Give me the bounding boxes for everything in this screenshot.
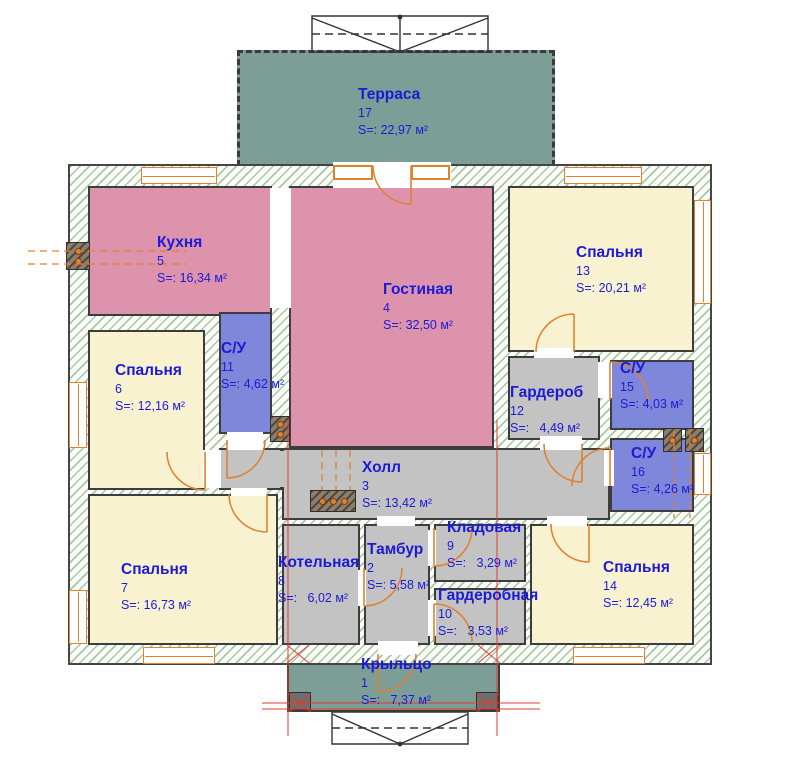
room-name: Крыльцо [361,655,432,675]
door-opening [428,600,436,636]
room-dressing10-label: Гардеробная 10 S=: 3,53 м² [438,586,538,639]
window [573,647,645,664]
room-number: 1 [361,675,432,692]
room-hall-corridor-area [219,448,282,490]
room-name: Холл [362,458,432,478]
door-opening [227,432,263,450]
room-su15-label: С/У 15 S=: 4,03 м² [620,359,683,412]
room-number: 5 [157,253,227,270]
porch-post [476,692,498,710]
vent-shaft [270,416,290,442]
room-name: Кухня [157,233,227,253]
window [69,590,87,644]
room-area: S=: 13,42 м² [362,495,432,512]
room-number: 10 [438,606,538,623]
room-area: S=: 16,73 м² [121,597,191,614]
door-opening [231,488,267,496]
passage-opening [270,188,291,308]
room-living-label: Гостиная 4 S=: 32,50 м² [383,280,453,333]
room-number: 2 [367,560,430,577]
room-wardrobe12-label: Гардероб 12 S=: 4,49 м² [510,383,583,436]
room-name: Гардероб [510,383,583,403]
door-opening [358,570,366,606]
room-porch-label: Крыльцо 1 S=: 7,37 м² [361,655,432,708]
room-name: Кладовая [447,518,521,538]
room-su16-label: С/У 16 S=: 4,26 м² [631,444,694,497]
room-bedroom7-label: Спальня 7 S=: 16,73 м² [121,560,191,613]
door-opening [604,450,614,486]
window [141,167,217,184]
room-number: 7 [121,580,191,597]
room-number: 16 [631,464,694,481]
room-number: 12 [510,403,583,420]
room-terrace-label: Терраса 17 S=: 22,97 м² [358,85,428,138]
window [143,647,215,664]
stairs-bottom [332,712,468,746]
room-kitchen-label: Кухня 5 S=: 16,34 м² [157,233,227,286]
room-hall-label: Холл 3 S=: 13,42 м² [362,458,432,511]
room-name: С/У [221,339,284,359]
room-area: S=: 32,50 м² [383,317,453,334]
room-area: S=: 16,34 м² [157,270,227,287]
room-number: 17 [358,105,428,122]
room-area: S=: 3,29 м² [447,555,521,572]
room-area: S=: 6,02 м² [278,590,359,607]
room-number: 9 [447,538,521,555]
window [564,167,642,184]
room-bedroom14-label: Спальня 14 S=: 12,45 м² [603,558,673,611]
terrace-door-frame [411,165,450,180]
room-name: Спальня [121,560,191,580]
porch-post [289,692,311,710]
room-name: С/У [631,444,694,464]
room-area: S=: 4,49 м² [510,420,583,437]
room-number: 11 [221,359,284,376]
room-number: 15 [620,379,683,396]
room-storage9-label: Кладовая 9 S=: 3,29 м² [447,518,521,571]
room-bedroom13-label: Спальня 13 S=: 20,21 м² [576,243,646,296]
room-area: S=: 20,21 м² [576,280,646,297]
room-name: Тамбур [367,540,430,560]
room-name: Гардеробная [438,586,538,606]
door-opening [598,362,612,398]
room-number: 6 [115,381,185,398]
room-name: Спальня [115,361,185,381]
room-bedroom6-label: Спальня 6 S=: 12,16 м² [115,361,185,414]
window [694,200,711,304]
vent-shaft [310,490,356,512]
room-number: 14 [603,578,673,595]
window [694,453,711,495]
room-name: Спальня [576,243,646,263]
room-area: S=: 5,58 м² [367,577,430,594]
room-su11-label: С/У 11 S=: 4,62 м² [221,339,284,392]
room-area: S=: 12,45 м² [603,595,673,612]
vent-shaft [66,242,90,270]
room-area: S=: 12,16 м² [115,398,185,415]
room-name: Терраса [358,85,428,105]
room-boiler-label: Котельная 8 S=: 6,02 м² [278,553,359,606]
stairs-top [312,15,488,52]
room-name: С/У [620,359,683,379]
room-number: 4 [383,300,453,317]
wall-patch [278,451,286,487]
window [69,382,87,448]
room-name: Спальня [603,558,673,578]
door-opening [547,516,587,526]
room-number: 3 [362,478,432,495]
room-area: S=: 7,37 м² [361,692,432,709]
door-opening [534,348,574,358]
room-area: S=: 3,53 м² [438,623,538,640]
room-tambur-label: Тамбур 2 S=: 5,58 м² [367,540,430,593]
room-number: 8 [278,573,359,590]
room-area: S=: 4,62 м² [221,376,284,393]
room-area: S=: 4,26 м² [631,481,694,498]
room-name: Котельная [278,553,359,573]
door-opening [377,516,415,526]
terrace-door-frame [333,165,373,180]
room-area: S=: 22,97 м² [358,122,428,139]
room-area: S=: 4,03 м² [620,396,683,413]
door-opening [203,450,221,488]
door-opening [378,641,418,655]
floor-plan: Терраса 17 S=: 22,97 м² Кухня 5 S=: 16,3… [0,0,800,763]
room-name: Гостиная [383,280,453,300]
door-opening [540,436,582,450]
room-number: 13 [576,263,646,280]
